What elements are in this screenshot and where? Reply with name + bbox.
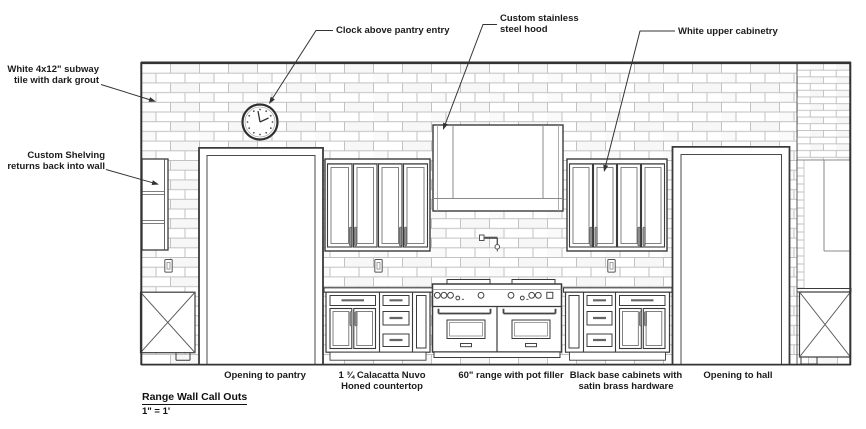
wall-clock	[243, 105, 278, 140]
right-wall-section	[797, 63, 851, 365]
countertop-left	[324, 288, 433, 292]
pantry-opening-frame	[199, 147, 323, 365]
label-pantry-opening: Opening to pantry	[201, 370, 329, 381]
drawing-scale-note: 1" = 1'	[142, 406, 170, 417]
upper-cabinets-right	[567, 159, 667, 251]
drawing-title: Range Wall Call Outs	[142, 391, 247, 405]
base-cabinets-left	[326, 292, 430, 360]
filler-panel	[417, 296, 427, 349]
elevation-drawing	[0, 0, 866, 429]
callout-shelving: Custom Shelving returns back into wall	[2, 150, 105, 173]
label-range: 60" range with pot filler	[450, 370, 572, 381]
hall-opening-frame	[673, 146, 790, 365]
power-outlet	[608, 260, 615, 273]
callout-subway-tile: White 4x12" subway tile with dark grout	[4, 64, 99, 87]
label-countertop: 1 ¾ Calacatta Nuvo Honed countertop	[328, 370, 436, 393]
upper-cabinets-left	[325, 159, 430, 251]
base-cabinets-right	[566, 292, 670, 360]
label-base-cabinets: Black base cabinets with satin brass har…	[563, 370, 689, 393]
range-60in	[433, 280, 562, 358]
small-tile-field	[797, 63, 851, 160]
power-outlet	[375, 260, 382, 273]
label-hall-opening: Opening to hall	[676, 370, 800, 381]
crossed-cabinet-left	[141, 292, 196, 360]
range-hood	[433, 125, 563, 211]
range-wall-elevation-sheet: White 4x12" subway tile with dark grout …	[0, 0, 866, 429]
custom-shelving-unit	[142, 159, 168, 250]
filler-panel	[569, 296, 579, 349]
crossed-cabinet-right	[800, 292, 851, 364]
callout-hood: Custom stainless steel hood	[500, 13, 592, 36]
countertop-right	[564, 288, 673, 292]
oven-vent	[461, 344, 472, 347]
oven-vent	[526, 344, 537, 347]
power-outlet	[165, 260, 172, 273]
callout-clock: Clock above pantry entry	[336, 25, 476, 36]
callout-upper-cabinets: White upper cabinetry	[678, 26, 808, 37]
